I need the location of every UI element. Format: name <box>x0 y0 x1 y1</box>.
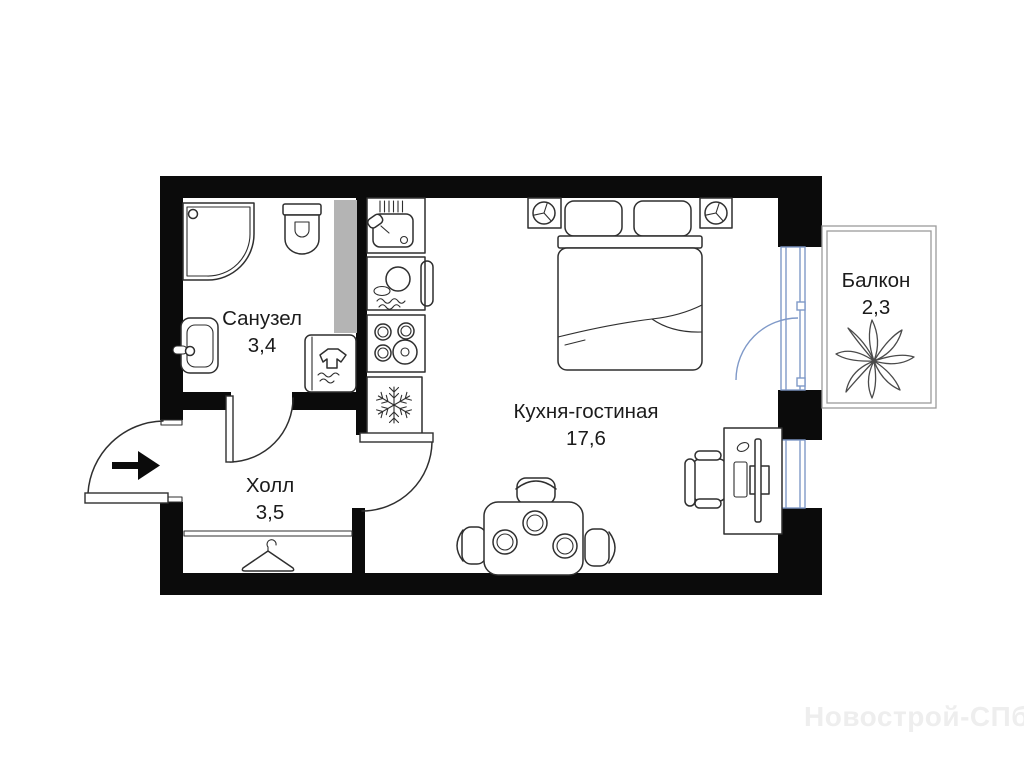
dining-chair-right <box>585 529 615 566</box>
toilet-icon <box>283 204 321 254</box>
bed-icon <box>558 201 702 370</box>
watermark: Новострой-СПб <box>804 701 1024 733</box>
nightstand-left <box>528 198 561 228</box>
room-label-kitchen-living: Кухня-гостиная 17,6 <box>513 398 658 452</box>
nightstand-right <box>700 198 732 228</box>
room-label-balcony: Балкон 2,3 <box>842 267 911 321</box>
kitchen-door <box>360 433 433 511</box>
washing-machine-icon <box>305 335 356 392</box>
desk-icon <box>724 428 782 534</box>
room-area: 3,5 <box>246 499 294 526</box>
fridge-icon <box>367 377 422 434</box>
dining-table-icon <box>484 502 583 575</box>
kitchen-sink-icon <box>366 198 425 253</box>
hanger-icon <box>242 540 293 571</box>
balcony-door-swing-arc <box>736 318 798 380</box>
door-arc <box>230 398 293 462</box>
room-area: 17,6 <box>513 425 658 452</box>
bathroom-door <box>226 396 293 462</box>
floorplan-canvas: Санузел 3,4 Холл 3,5 Кухня-гостиная 17,6… <box>0 0 1024 768</box>
wardrobe <box>184 531 352 571</box>
dishwasher-icon <box>367 257 433 310</box>
plant-icon <box>836 320 914 398</box>
room-area: 3,4 <box>222 332 302 359</box>
shower-icon <box>183 203 254 280</box>
door-arc <box>362 442 432 511</box>
dining-chair-top <box>516 478 556 504</box>
room-area: 2,3 <box>842 294 911 321</box>
office-chair-icon <box>685 451 726 508</box>
room-name: Холл <box>246 472 294 499</box>
window <box>781 440 805 508</box>
room-name: Санузел <box>222 305 302 332</box>
room-label-bathroom: Санузел 3,4 <box>222 305 302 359</box>
room-name: Балкон <box>842 267 911 294</box>
balcony-door <box>736 247 805 390</box>
stove-icon <box>367 315 425 372</box>
floorplan-drawing <box>0 0 1024 768</box>
dining-chair-left <box>457 527 486 564</box>
vent-shaft <box>334 200 357 333</box>
room-name: Кухня-гостиная <box>513 398 658 425</box>
entrance-door <box>85 421 168 503</box>
room-label-hall: Холл 3,5 <box>246 472 294 526</box>
door-arc <box>88 421 163 493</box>
entrance-arrow-icon <box>112 451 160 480</box>
